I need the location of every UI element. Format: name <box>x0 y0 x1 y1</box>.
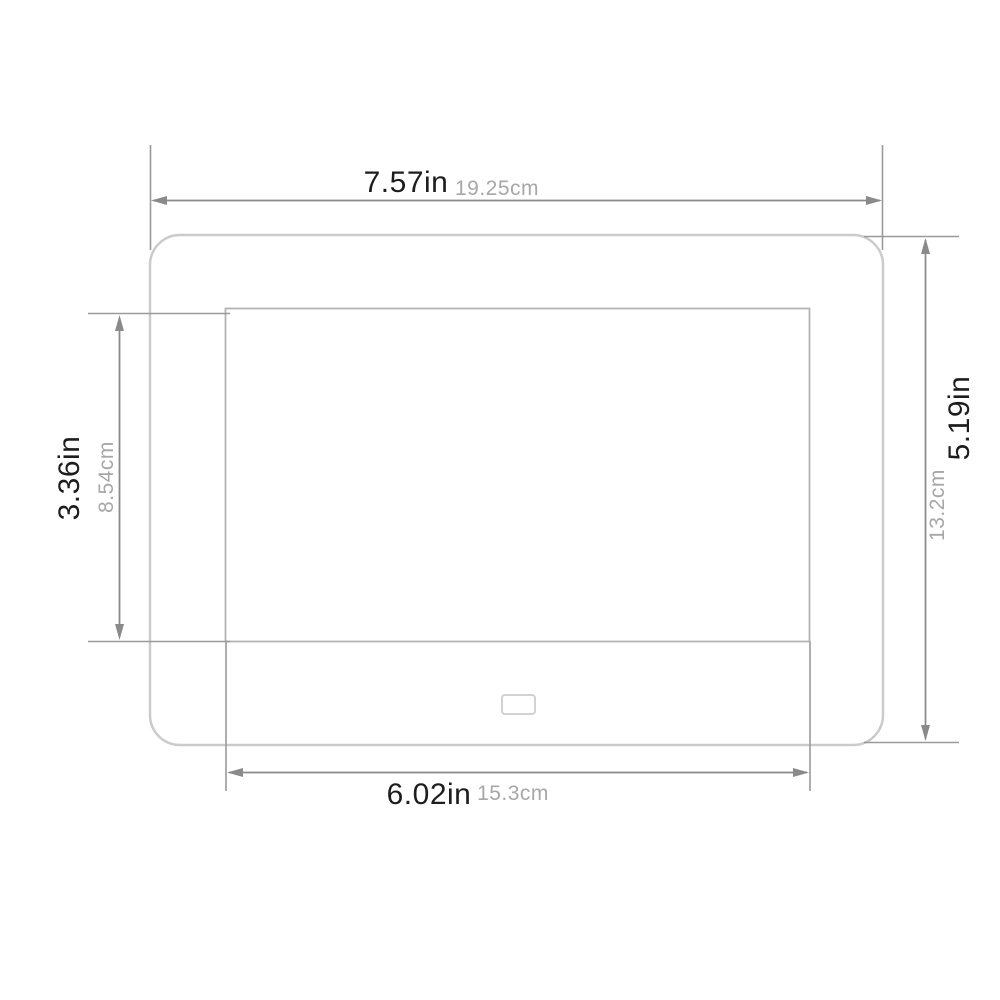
screen-width-arrow-right <box>793 768 809 777</box>
screen-width-inches-label: 6.02in <box>387 778 472 811</box>
screen-width-metric-label: 15.3cm <box>477 782 549 805</box>
screen-height-arrow-down <box>115 624 124 640</box>
screen-height-inches-label: 3.36in <box>53 436 86 521</box>
outer-width-arrow-right <box>866 196 882 205</box>
screen-width-arrow-left <box>227 768 243 777</box>
outer-width-inches-label: 7.57in <box>364 166 449 199</box>
outer-height-arrow-up <box>921 238 930 254</box>
dimension-diagram-page: 7.57in 19.25cm 3.36in 8.54cm 5.19in 13.2… <box>0 0 1000 1000</box>
outer-height-inches-label: 5.19in <box>943 376 976 461</box>
outer-width-metric-label: 19.25cm <box>455 177 539 200</box>
screen-height-arrow-up <box>115 315 124 331</box>
outer-width-arrow-left <box>151 196 167 205</box>
screen-outline <box>226 309 810 642</box>
screen-height-metric-label: 8.54cm <box>95 441 118 513</box>
outer-height-metric-label: 13.2cm <box>926 469 949 541</box>
outer-height-arrow-down <box>921 725 930 741</box>
photo-frame-dimension-diagram: 7.57in 19.25cm 3.36in 8.54cm 5.19in 13.2… <box>0 0 1000 1000</box>
ir-sensor-outline <box>502 695 535 714</box>
